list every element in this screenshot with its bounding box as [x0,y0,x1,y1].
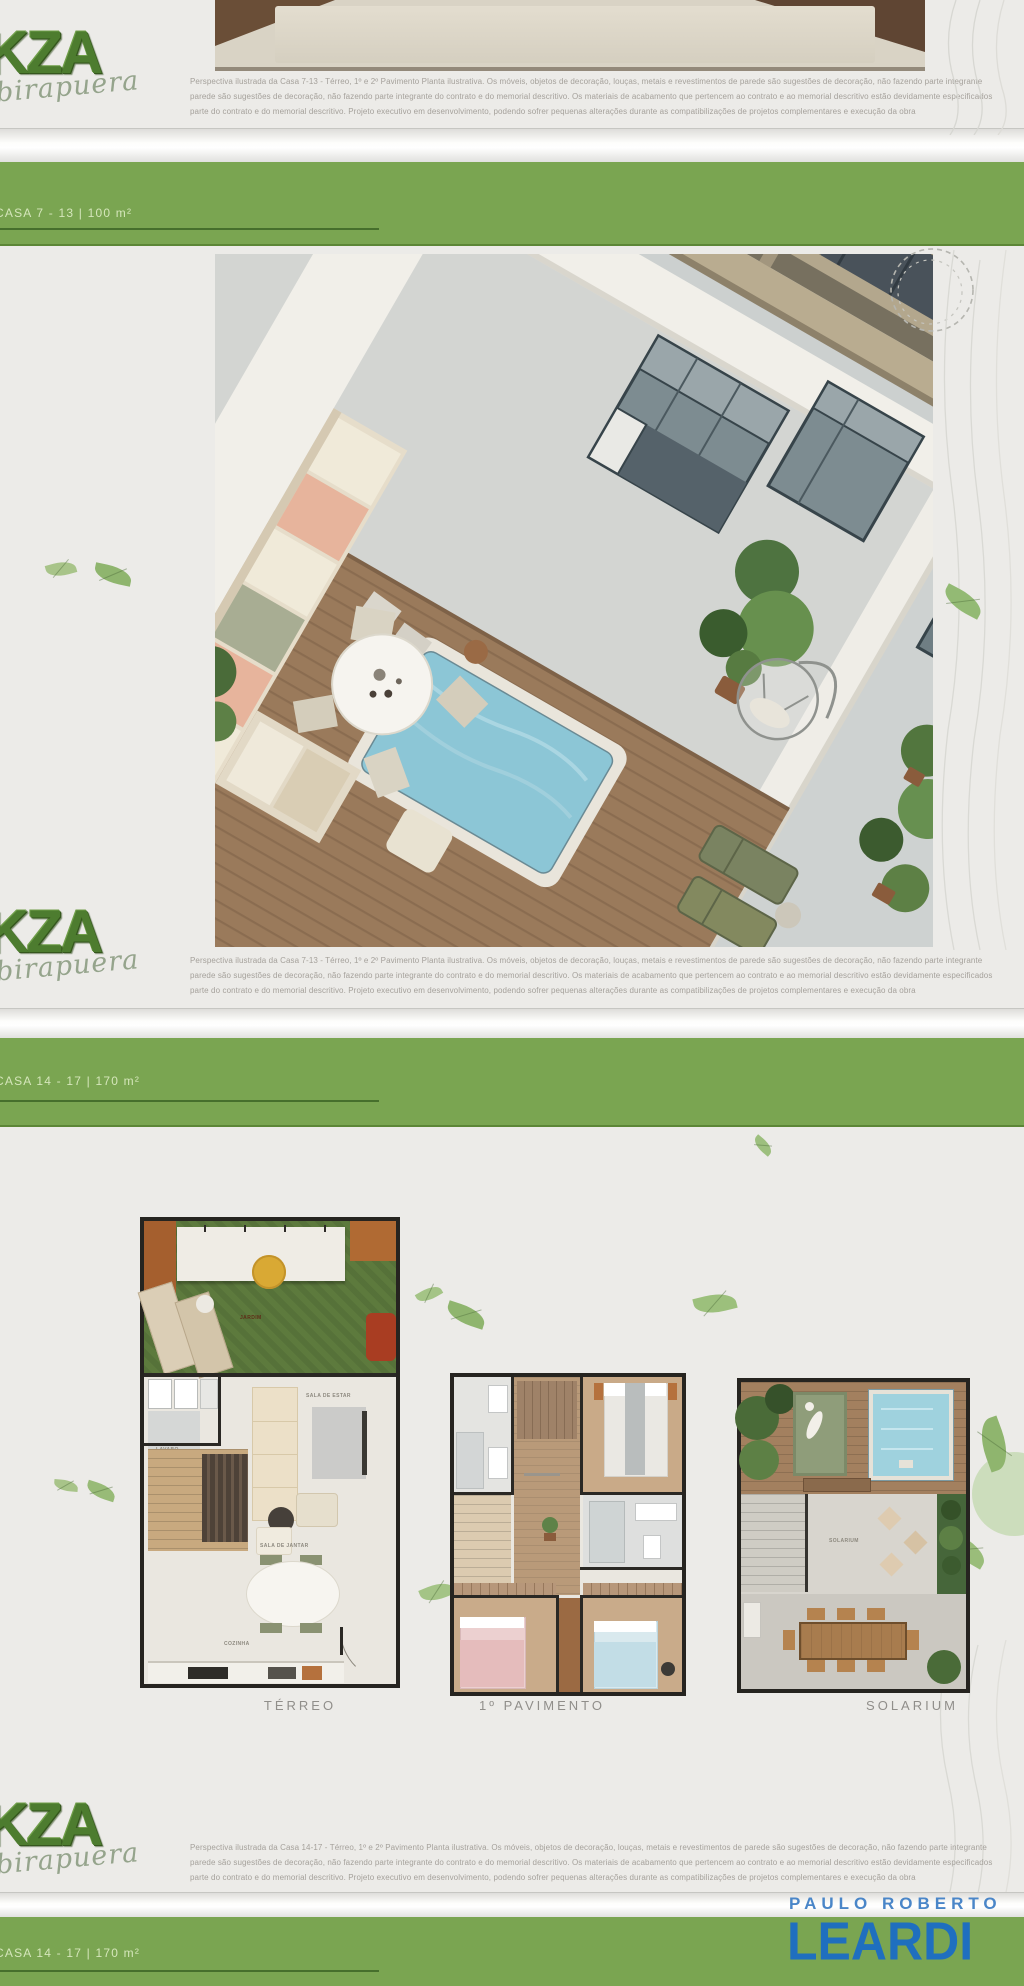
band-label: CASA 7 - 13 | 100 m² [0,206,132,220]
disclaimer-bottom: Perspectiva ilustrada da Casa 14-17 - Té… [190,1840,1024,1885]
terrace-3d-render [215,254,933,947]
bench [803,1478,871,1492]
disclaimer-top: Perspectiva ilustrada da Casa 7-13 - Tér… [190,74,1024,119]
disclaimer-line: parte do contrato e do memorial descriti… [190,1870,1024,1885]
leaf-icon [85,1480,118,1503]
realtor-logo-name: LEARDI [787,1910,973,1973]
laundry-fixture [200,1379,218,1409]
chair [837,1608,855,1620]
door-arc [340,1629,393,1682]
disclaimer-line: Perspectiva ilustrada da Casa 14-17 - Té… [190,1840,1024,1855]
room-label-sala-jantar: SALA DE JANTAR [260,1543,309,1549]
disclaimer-middle: Perspectiva ilustrada da Casa 7-13 - Tér… [190,953,1024,998]
side-table [196,1295,214,1313]
fixture [743,1602,761,1638]
kitchen-counter [148,1661,344,1683]
room-label-jardim: JARDIM [240,1315,262,1321]
sun-mat [793,1392,847,1476]
green-band-casa-14-17: CASA 14 - 17 | 170 m² [0,1038,1024,1127]
band-underline [0,1970,379,1972]
wardrobe [454,1583,556,1595]
bathroom [583,1495,682,1567]
leaf-icon [415,1282,444,1305]
suite-master [583,1377,682,1492]
planter-strip [937,1494,966,1594]
plunge-pool [869,1390,953,1480]
bedroom-photo-fragment [215,0,925,71]
green-band-casa-7-13: CASA 7 - 13 | 100 m² [0,162,1024,246]
tiny-label-smudge [524,1473,560,1476]
disclaimer-line: parede são sugestões de decoração, não f… [190,968,1024,983]
chair [783,1630,795,1650]
plan-label-pavimento: 1º PAVIMENTO [479,1698,605,1713]
closet-column [559,1598,580,1692]
disclaimer-line: Perspectiva ilustrada da Casa 7-13 - Tér… [190,74,1024,89]
room-label-cozinha: COZINHA [224,1641,250,1647]
leaf-icon [444,1300,488,1329]
dining-chair [260,1623,282,1633]
plant-pot [544,1533,556,1541]
solarium-dining-floor [741,1594,966,1689]
sofa [252,1387,298,1521]
section-divider [0,128,1024,163]
living-rug [312,1407,366,1479]
parasol [252,1255,286,1289]
pouf [903,1530,927,1554]
wardrobe [517,1381,577,1439]
pouf [879,1552,903,1576]
chair [807,1660,825,1672]
armchair [256,1527,292,1555]
dining-table-oval [246,1561,340,1627]
plan-solarium: SOLARIUM [737,1378,970,1693]
red-flower-planter [366,1313,396,1361]
solarium-mid-floor: SOLARIUM [741,1494,966,1594]
disclaimer-line: Perspectiva ilustrada da Casa 7-13 - Tér… [190,953,1024,968]
leaf-icon [751,1134,775,1157]
planter [350,1221,396,1261]
plan-label-solarium: SOLARIUM [866,1698,958,1713]
pouf [877,1506,901,1530]
bathroom [454,1377,511,1492]
section-divider [0,1008,1024,1039]
plan-terreo: JARDIM LAVABO SALA DE ESTAR SALA DE JANT… [140,1217,400,1688]
wardrobe [583,1583,682,1595]
plan-label-terreo: TÉRREO [264,1698,336,1713]
solarium-deck [741,1382,966,1494]
chair [907,1630,919,1650]
chair [807,1608,825,1620]
band-label: CASA 14 - 17 | 170 m² [0,1074,140,1088]
plant [927,1650,961,1684]
plant [542,1517,558,1533]
dining-chair [300,1623,322,1633]
tv [362,1411,367,1475]
band-underline [0,1100,379,1102]
disclaimer-line: parte do contrato e do memorial descriti… [190,983,1024,998]
stairs [454,1495,511,1595]
chair [867,1660,885,1672]
brochure-page: KZA ibirapuera Perspectiva ilustrada da … [0,0,1024,1986]
armchair [296,1493,338,1527]
room-label-sala-estar: SALA DE ESTAR [306,1393,351,1399]
plan-pavimento [450,1373,686,1696]
stairs [741,1494,808,1592]
bedroom-1 [454,1598,556,1692]
bedroom-2 [583,1598,682,1692]
leaf-icon [54,1479,79,1492]
garden-lawn: JARDIM [144,1221,396,1373]
leaf-icon [45,558,78,579]
dining-table-wood [799,1622,907,1660]
chair [837,1660,855,1672]
stair-panel [202,1454,248,1542]
leaf-icon [93,562,134,587]
room-label-solarium: SOLARIUM [829,1538,859,1544]
disclaimer-line: parede são sugestões de decoração, não f… [190,89,1024,104]
band-label: CASA 14 - 17 | 170 m² [0,1946,140,1960]
arc-lines-top [936,0,1024,135]
leaf-icon [692,1289,737,1318]
band-underline [0,228,379,230]
disclaimer-line: parede são sugestões de decoração, não f… [190,1855,1024,1870]
laundry-fixture [148,1379,172,1409]
rug [275,6,875,63]
chair [867,1608,885,1620]
disclaimer-line: parte do contrato e do memorial descriti… [190,104,1024,119]
laundry-fixture [174,1379,198,1409]
